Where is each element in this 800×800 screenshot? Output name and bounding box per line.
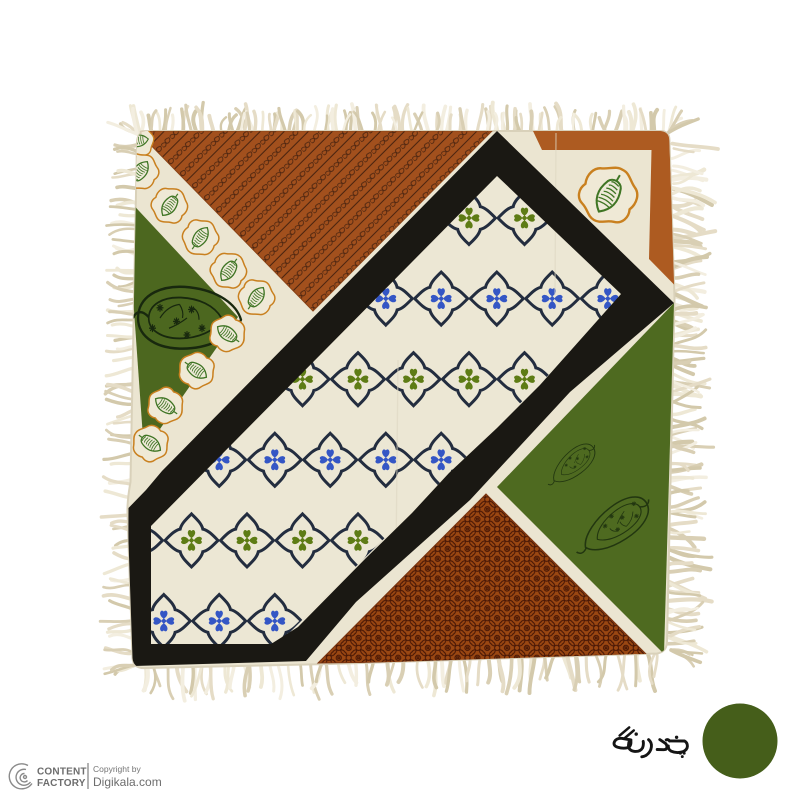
svg-text:Digikala.com: Digikala.com — [93, 775, 162, 789]
svg-text:Copyright by: Copyright by — [93, 764, 141, 774]
svg-text:CONTENT: CONTENT — [37, 767, 87, 778]
svg-text:FACTORY: FACTORY — [37, 778, 86, 789]
